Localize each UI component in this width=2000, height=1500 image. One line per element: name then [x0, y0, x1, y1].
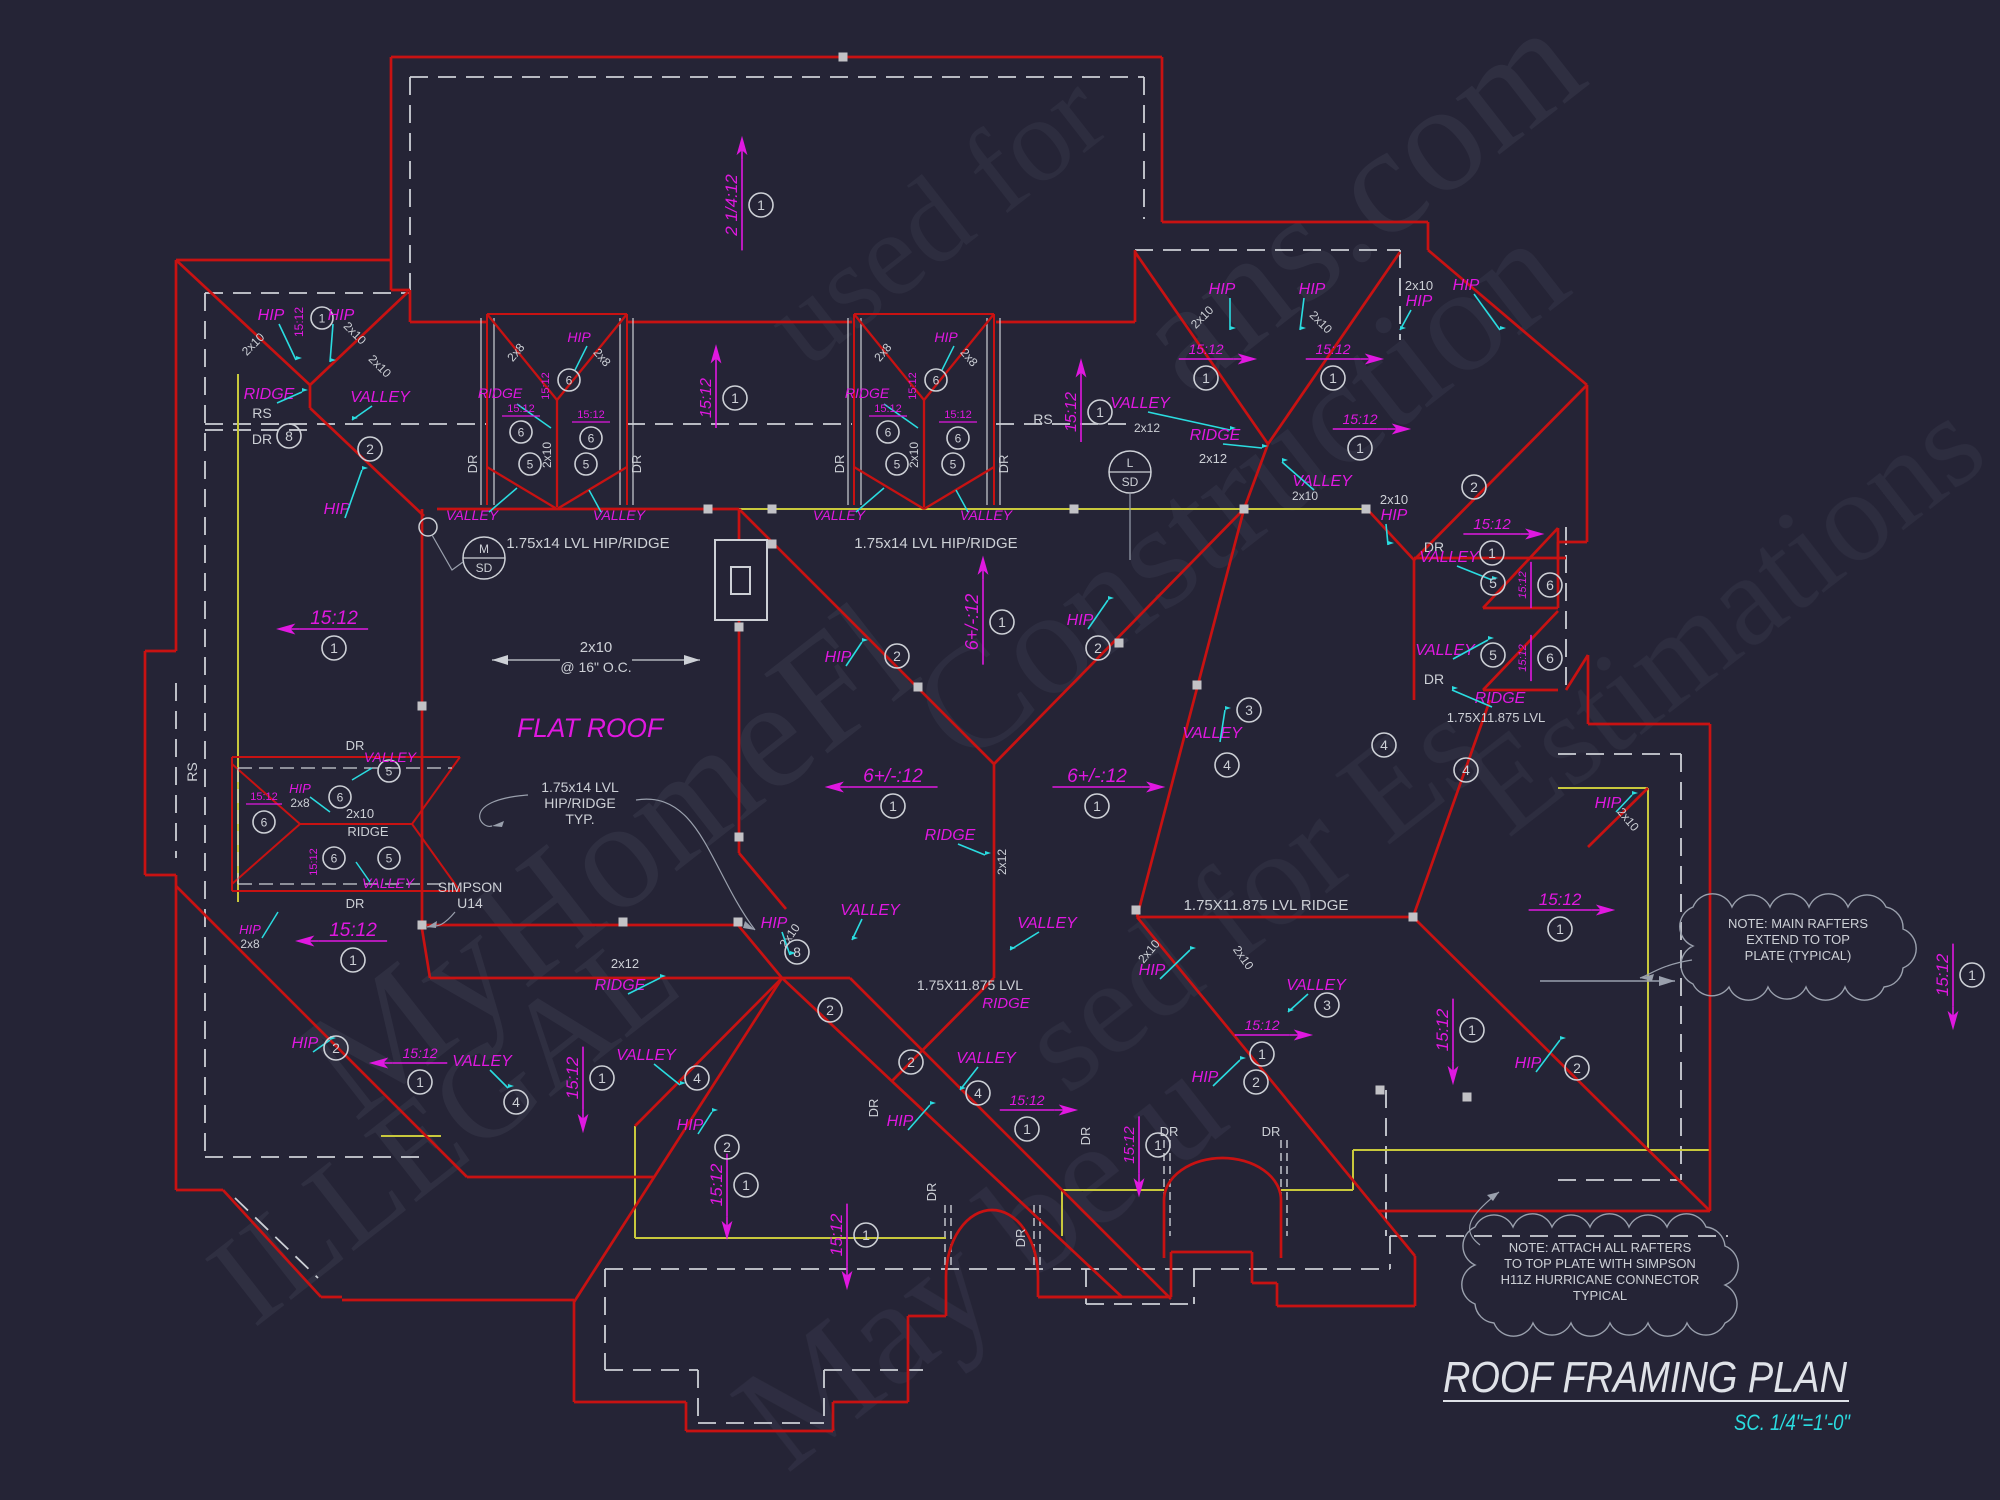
svg-text:DR: DR: [1160, 1124, 1179, 1139]
svg-text:RS: RS: [1033, 411, 1052, 427]
svg-text:3: 3: [1245, 702, 1253, 718]
svg-text:1: 1: [1258, 1046, 1266, 1062]
svg-text:HIP: HIP: [258, 307, 285, 324]
svg-text:2x10: 2x10: [1292, 489, 1318, 503]
svg-text:5: 5: [527, 457, 534, 471]
svg-text:4: 4: [512, 1094, 520, 1110]
svg-text:DR: DR: [1424, 671, 1444, 687]
svg-text:2x12: 2x12: [1199, 451, 1227, 466]
svg-text:HIP: HIP: [1406, 293, 1433, 310]
svg-text:SD: SD: [1122, 475, 1139, 489]
svg-text:VALLEY: VALLEY: [364, 749, 418, 765]
svg-text:HIP: HIP: [934, 329, 958, 345]
svg-text:2x12: 2x12: [611, 956, 639, 971]
svg-text:1: 1: [1356, 440, 1364, 456]
svg-text:15:12: 15:12: [1433, 1008, 1452, 1051]
svg-text:1: 1: [757, 197, 765, 213]
svg-text:TO TOP PLATE WITH SIMPSON: TO TOP PLATE WITH SIMPSON: [1504, 1256, 1696, 1271]
svg-text:2: 2: [723, 1139, 731, 1155]
svg-text:1.75X11.875 LVL: 1.75X11.875 LVL: [917, 977, 1023, 993]
svg-text:6: 6: [331, 851, 338, 865]
svg-text:VALLEY: VALLEY: [956, 1050, 1017, 1067]
svg-text:2: 2: [1252, 1074, 1260, 1090]
svg-text:15:12: 15:12: [507, 403, 535, 415]
svg-text:2: 2: [366, 441, 374, 457]
svg-text:DR: DR: [1078, 1127, 1093, 1146]
svg-text:15:12: 15:12: [292, 307, 306, 337]
svg-text:HIP: HIP: [328, 307, 355, 324]
svg-text:15:12: 15:12: [1121, 1126, 1138, 1164]
svg-text:15:12: 15:12: [707, 1163, 726, 1206]
svg-text:2: 2: [332, 1040, 340, 1056]
svg-text:1: 1: [731, 390, 739, 406]
svg-text:RS: RS: [252, 405, 271, 421]
svg-text:5: 5: [386, 764, 393, 778]
svg-text:1: 1: [1468, 1022, 1476, 1038]
svg-text:2x10: 2x10: [1405, 278, 1433, 293]
svg-text:15:12: 15:12: [577, 409, 605, 421]
svg-text:2x12: 2x12: [1134, 421, 1160, 435]
svg-text:15:12: 15:12: [698, 378, 715, 418]
svg-text:VALLEY: VALLEY: [1182, 725, 1243, 742]
svg-text:2x10: 2x10: [540, 442, 554, 468]
svg-text:1: 1: [1329, 370, 1337, 386]
svg-text:HIP: HIP: [1453, 277, 1480, 294]
svg-text:1.75x14 LVL: 1.75x14 LVL: [541, 779, 619, 795]
svg-text:DR: DR: [465, 455, 480, 474]
svg-text:HIP: HIP: [567, 329, 591, 345]
svg-text:DR: DR: [832, 455, 847, 474]
svg-text:1.75X11.875 LVL RIDGE: 1.75X11.875 LVL RIDGE: [1184, 897, 1349, 914]
svg-text:4: 4: [693, 1070, 701, 1086]
svg-text:1: 1: [330, 640, 338, 656]
svg-text:6: 6: [1546, 650, 1554, 666]
svg-text:DR: DR: [924, 1183, 939, 1202]
svg-text:1: 1: [742, 1177, 750, 1193]
svg-text:15:12: 15:12: [329, 920, 377, 941]
svg-text:HIP: HIP: [1209, 281, 1236, 298]
svg-text:VALLEY: VALLEY: [960, 507, 1014, 523]
svg-text:2x10: 2x10: [580, 639, 613, 656]
svg-text:15:12: 15:12: [1315, 341, 1350, 357]
svg-text:15:12: 15:12: [827, 1213, 846, 1256]
svg-text:8: 8: [285, 428, 293, 444]
svg-text:1.75X11.875 LVL: 1.75X11.875 LVL: [1447, 710, 1546, 725]
svg-text:SC. 1/4"=1'-0": SC. 1/4"=1'-0": [1734, 1410, 1851, 1435]
svg-text:1: 1: [1968, 967, 1976, 983]
svg-text:ROOF FRAMING PLAN: ROOF FRAMING PLAN: [1443, 1353, 1847, 1402]
svg-text:2 1/4:12: 2 1/4:12: [722, 174, 741, 237]
svg-text:VALLEY: VALLEY: [452, 1053, 513, 1070]
svg-text:8: 8: [793, 944, 801, 960]
svg-text:15:12: 15:12: [1342, 411, 1377, 427]
svg-text:HIP: HIP: [289, 781, 311, 796]
svg-text:RIDGE: RIDGE: [845, 385, 890, 401]
svg-text:H11Z HURRICANE CONNECTOR: H11Z HURRICANE CONNECTOR: [1501, 1272, 1700, 1287]
svg-text:RS: RS: [184, 762, 200, 781]
svg-text:NOTE: MAIN RAFTERS: NOTE: MAIN RAFTERS: [1728, 916, 1868, 931]
svg-text:2x8: 2x8: [240, 937, 260, 951]
svg-text:1: 1: [416, 1074, 424, 1090]
svg-text:2: 2: [1470, 479, 1478, 495]
svg-text:VALLEY: VALLEY: [1419, 549, 1480, 566]
svg-text:15:12: 15:12: [540, 372, 552, 400]
svg-text:VALLEY: VALLEY: [350, 389, 411, 406]
svg-text:2x10: 2x10: [1380, 492, 1408, 507]
svg-text:NOTE: ATTACH ALL RAFTERS: NOTE: ATTACH ALL RAFTERS: [1509, 1240, 1692, 1255]
svg-text:15:12: 15:12: [1473, 516, 1511, 533]
svg-text:DR: DR: [252, 431, 272, 447]
svg-text:5: 5: [386, 851, 393, 865]
svg-text:6+/-:12: 6+/-:12: [962, 594, 982, 651]
svg-text:TYPICAL: TYPICAL: [1573, 1288, 1627, 1303]
svg-text:15:12: 15:12: [874, 403, 902, 415]
svg-text:5: 5: [583, 457, 590, 471]
svg-text:15:12: 15:12: [1244, 1017, 1279, 1033]
svg-text:15:12: 15:12: [1517, 644, 1529, 672]
svg-text:1.75x14 LVL HIP/RIDGE: 1.75x14 LVL HIP/RIDGE: [854, 535, 1017, 552]
svg-text:PLATE (TYPICAL): PLATE (TYPICAL): [1745, 948, 1852, 963]
svg-text:RIDGE: RIDGE: [244, 386, 295, 403]
svg-text:HIP: HIP: [239, 922, 261, 937]
svg-text:1: 1: [1154, 1137, 1162, 1153]
svg-text:2: 2: [907, 1054, 915, 1070]
svg-text:4: 4: [1380, 737, 1388, 753]
svg-text:15:12: 15:12: [563, 1056, 582, 1099]
svg-text:@ 16" O.C.: @ 16" O.C.: [560, 659, 631, 675]
svg-text:1: 1: [998, 614, 1006, 630]
svg-text:VALLEY: VALLEY: [1292, 473, 1353, 490]
svg-text:2x10: 2x10: [907, 442, 921, 468]
svg-text:15:12: 15:12: [308, 848, 320, 876]
svg-text:15:12: 15:12: [1188, 341, 1223, 357]
svg-text:DR: DR: [346, 896, 365, 911]
svg-text:6: 6: [933, 373, 940, 387]
svg-text:HIP/RIDGE: HIP/RIDGE: [544, 795, 616, 811]
svg-text:5: 5: [1489, 647, 1497, 663]
svg-text:VALLEY: VALLEY: [1286, 977, 1347, 994]
svg-text:1: 1: [1023, 1121, 1031, 1137]
svg-text:6: 6: [337, 790, 344, 804]
svg-text:15:12: 15:12: [1933, 953, 1952, 996]
svg-text:6: 6: [1546, 577, 1554, 593]
svg-text:6: 6: [518, 425, 525, 439]
svg-text:2x12: 2x12: [995, 849, 1009, 875]
svg-text:3: 3: [1323, 997, 1331, 1013]
svg-text:RIDGE: RIDGE: [595, 977, 646, 994]
svg-text:4: 4: [974, 1085, 982, 1101]
svg-text:HIP: HIP: [1381, 507, 1408, 524]
svg-text:1: 1: [1096, 404, 1104, 420]
svg-text:1: 1: [1202, 370, 1210, 386]
svg-text:6: 6: [885, 425, 892, 439]
svg-text:15:12: 15:12: [250, 791, 278, 803]
svg-text:2: 2: [1573, 1060, 1581, 1076]
svg-text:15:12: 15:12: [1063, 392, 1080, 432]
svg-text:6: 6: [566, 373, 573, 387]
svg-text:6: 6: [588, 431, 595, 445]
svg-text:EXTEND TO TOP: EXTEND TO TOP: [1746, 932, 1850, 947]
svg-text:1: 1: [862, 1227, 870, 1243]
svg-text:1: 1: [889, 798, 897, 814]
svg-text:VALLEY: VALLEY: [593, 507, 647, 523]
svg-text:U14: U14: [457, 895, 483, 911]
svg-text:HIP: HIP: [292, 1035, 319, 1052]
svg-text:RIDGE: RIDGE: [1475, 690, 1526, 707]
svg-text:VALLEY: VALLEY: [1110, 395, 1171, 412]
svg-text:2x10: 2x10: [346, 806, 374, 821]
svg-text:DR: DR: [346, 738, 365, 753]
svg-text:RIDGE: RIDGE: [982, 995, 1031, 1012]
svg-text:5: 5: [894, 457, 901, 471]
svg-text:DR: DR: [996, 455, 1011, 474]
svg-text:DR: DR: [629, 455, 644, 474]
svg-text:DR: DR: [1013, 1229, 1028, 1248]
svg-text:DR: DR: [1262, 1124, 1281, 1139]
svg-text:15:12: 15:12: [310, 608, 358, 629]
svg-text:SIMPSON: SIMPSON: [438, 879, 503, 895]
svg-text:6+/-:12: 6+/-:12: [1067, 766, 1127, 787]
svg-text:6: 6: [261, 815, 268, 829]
svg-text:TYP.: TYP.: [565, 811, 594, 827]
svg-text:1: 1: [598, 1070, 606, 1086]
svg-text:4: 4: [1223, 757, 1231, 773]
svg-text:RIDGE: RIDGE: [478, 385, 523, 401]
svg-text:1: 1: [319, 311, 326, 325]
svg-text:HIP: HIP: [1299, 281, 1326, 298]
svg-text:6+/-:12: 6+/-:12: [863, 766, 923, 787]
svg-text:2: 2: [893, 648, 901, 664]
svg-text:SD: SD: [476, 561, 493, 575]
svg-text:15:12: 15:12: [1517, 571, 1529, 599]
svg-text:VALLEY: VALLEY: [616, 1047, 677, 1064]
svg-text:RIDGE: RIDGE: [925, 827, 976, 844]
svg-text:5: 5: [1489, 575, 1497, 591]
svg-text:RIDGE: RIDGE: [1190, 427, 1241, 444]
svg-text:FLAT ROOF: FLAT ROOF: [517, 713, 664, 743]
svg-text:1: 1: [1488, 545, 1496, 561]
svg-text:15:12: 15:12: [1539, 890, 1582, 909]
svg-text:6: 6: [955, 431, 962, 445]
svg-text:2x8: 2x8: [290, 796, 310, 810]
svg-text:2: 2: [1094, 640, 1102, 656]
svg-text:HIP: HIP: [761, 915, 788, 932]
svg-text:4: 4: [1462, 762, 1470, 778]
svg-text:L: L: [1127, 456, 1134, 470]
svg-text:1: 1: [349, 952, 357, 968]
svg-text:2: 2: [826, 1002, 834, 1018]
svg-text:VALLEY: VALLEY: [840, 902, 901, 919]
svg-text:1: 1: [1556, 921, 1564, 937]
svg-text:15:12: 15:12: [402, 1045, 437, 1061]
svg-text:RIDGE: RIDGE: [347, 824, 389, 839]
svg-text:15:12: 15:12: [1009, 1092, 1044, 1108]
svg-text:VALLEY: VALLEY: [362, 875, 416, 891]
svg-text:VALLEY: VALLEY: [1017, 915, 1078, 932]
svg-text:1: 1: [1093, 798, 1101, 814]
svg-text:5: 5: [950, 457, 957, 471]
svg-text:15:12: 15:12: [944, 409, 972, 421]
svg-text:1.75x14 LVL HIP/RIDGE: 1.75x14 LVL HIP/RIDGE: [506, 535, 669, 552]
svg-text:M: M: [479, 542, 489, 556]
svg-text:15:12: 15:12: [907, 372, 919, 400]
svg-text:DR: DR: [866, 1099, 881, 1118]
